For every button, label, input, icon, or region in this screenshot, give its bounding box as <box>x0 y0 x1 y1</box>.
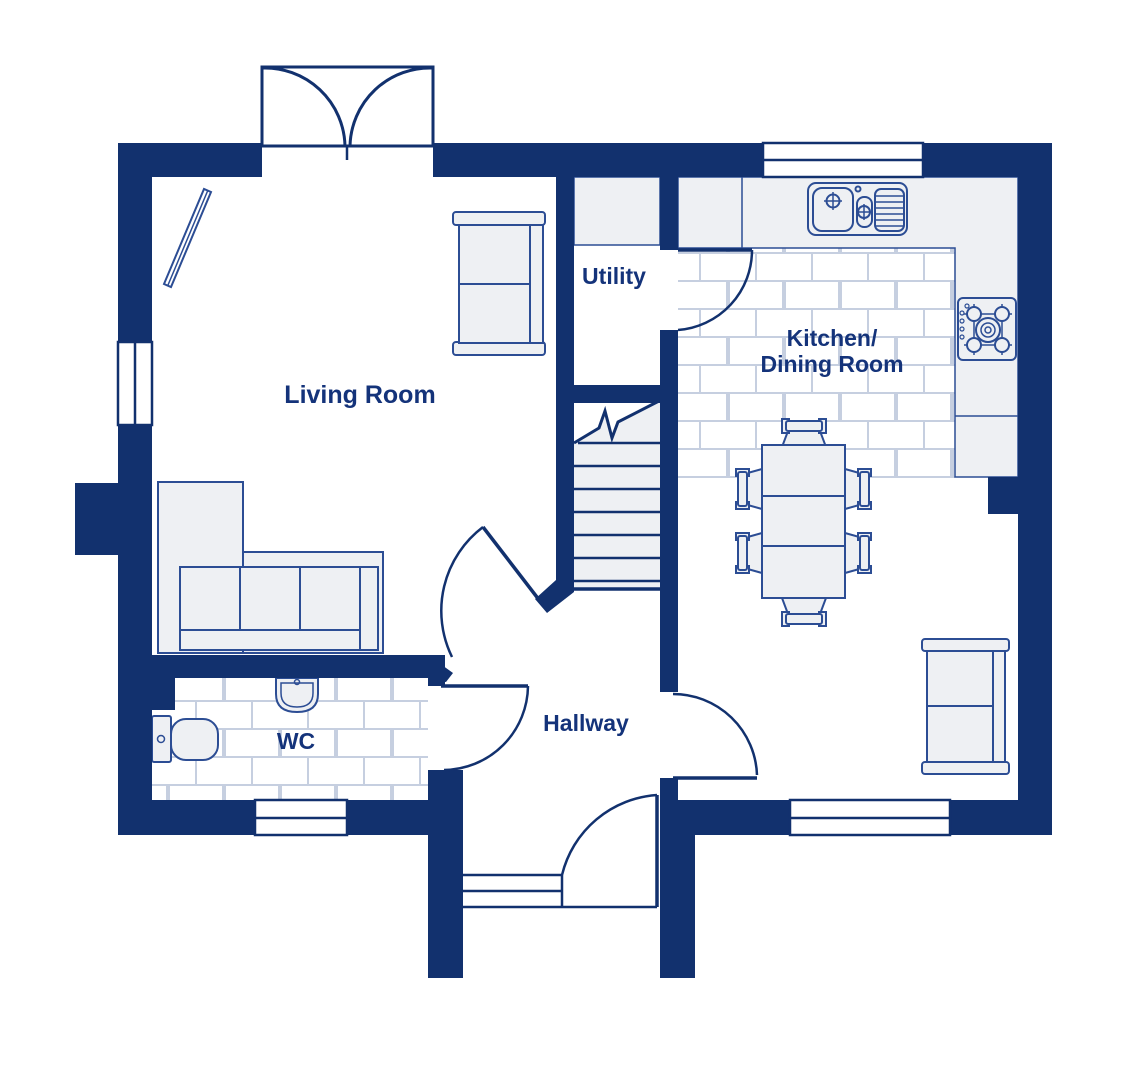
wall-stairs-right <box>660 330 678 692</box>
gas-hob <box>958 298 1016 360</box>
wall-wc-right-upper <box>428 655 445 686</box>
utility-label: Utility <box>582 263 646 289</box>
wall-utility-kitchen-upper <box>660 143 678 250</box>
porch-wall-left <box>428 800 463 978</box>
living-room-small-sofa <box>453 212 545 355</box>
dining-small-sofa <box>922 639 1009 774</box>
wall-bottom-left <box>118 800 255 835</box>
window-living-left <box>118 342 152 425</box>
wall-bottom-wc <box>347 800 428 835</box>
wall-left-upper <box>118 177 152 342</box>
wall-top-left <box>118 143 262 177</box>
wc-label: WC <box>277 728 315 754</box>
wall-counter-return-stub <box>988 477 1018 514</box>
toilet <box>152 716 218 762</box>
wall-living-room-right <box>556 177 574 587</box>
wall-wc-top <box>118 655 428 678</box>
wall-hallway-kitchen-lower <box>660 778 678 835</box>
french-doors-living <box>262 67 433 160</box>
staircase <box>574 401 660 589</box>
floor-plan-page: Living Room Utility Kitchen/ Dining Room… <box>0 0 1132 1080</box>
front-door <box>562 795 657 907</box>
door-living-hallway <box>441 527 543 657</box>
wall-mounted-tv <box>164 189 211 287</box>
floor-plan-drawing: Living Room Utility Kitchen/ Dining Room… <box>0 0 1132 1080</box>
wall-left-lower <box>118 425 152 800</box>
utility-worktop <box>574 177 660 245</box>
living-room-label: Living Room <box>284 381 435 409</box>
hallway-label: Hallway <box>543 710 629 736</box>
window-wc-bottom <box>255 800 347 835</box>
window-dining-bottom <box>790 800 950 835</box>
hand-basin <box>276 678 318 712</box>
wall-stub-living-door <box>535 580 574 613</box>
kitchen-dining-label-line1: Kitchen/ <box>787 325 878 351</box>
kitchen-sink <box>808 183 907 235</box>
corner-sofa <box>158 482 383 653</box>
wall-right <box>1018 177 1052 835</box>
chimney-breast <box>75 483 118 555</box>
wall-bottom-middle <box>695 800 790 835</box>
wall-top-right <box>923 143 1052 177</box>
window-kitchen-top <box>763 143 923 177</box>
window-porch-sidelight <box>463 875 562 907</box>
wall-utility-bottom <box>556 385 660 403</box>
door-wc <box>441 686 528 770</box>
kitchen-dining-label-line2: Dining Room <box>760 351 903 377</box>
wall-wc-notch <box>152 678 175 710</box>
wall-wc-right-lower <box>428 770 463 800</box>
wall-top-middle <box>433 143 763 177</box>
door-hallway-kitchen <box>673 694 757 778</box>
wall-bottom-right <box>950 800 1052 835</box>
